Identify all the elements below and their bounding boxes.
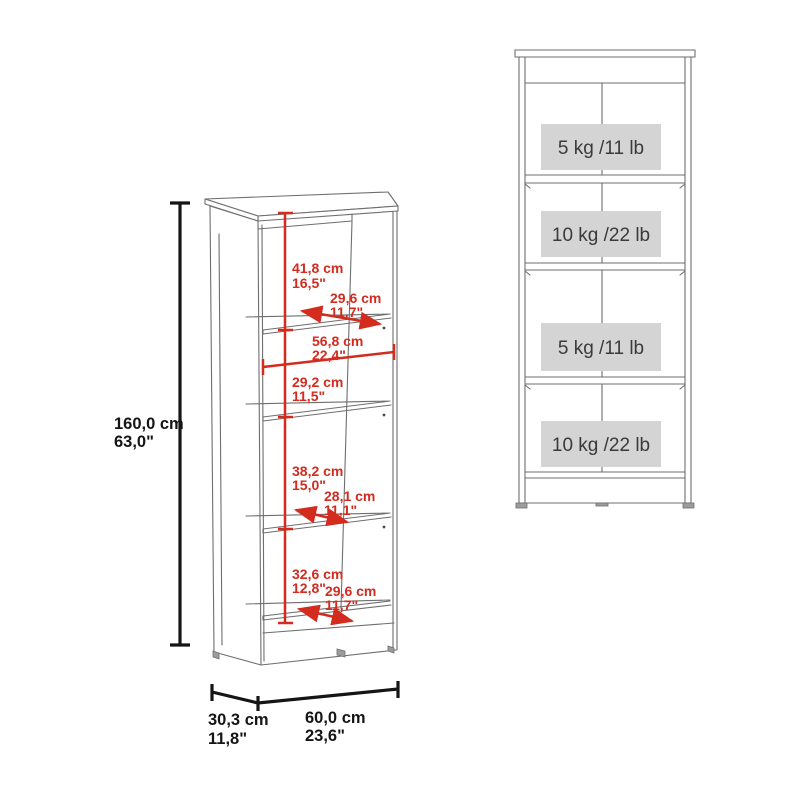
- capacity-label-1: 5 kg /11 lb: [558, 138, 644, 159]
- bookcase-dimension-diagram: 41,8 cm 16,5" 29,6 cm 11,7" 56,8 cm 22,4…: [0, 0, 800, 800]
- dim-third-compartment-in: 15,0": [292, 477, 326, 493]
- interior-dimension-labels: 41,8 cm 16,5" 29,6 cm 11,7" 56,8 cm 22,4…: [292, 260, 381, 613]
- shelf-1-pin: [383, 327, 386, 330]
- shelf-2-pin: [383, 414, 386, 417]
- depth-dim-cm: 30,3 cm: [208, 711, 269, 729]
- bottom-shelf: [246, 600, 391, 620]
- left-side-panel: [210, 206, 261, 665]
- depth-dim-in: 11,8": [208, 730, 247, 748]
- front-center-glide: [596, 503, 608, 506]
- dim-second-compartment-in: 11,5": [292, 388, 325, 404]
- capacity-label-4: 10 kg /22 lb: [552, 435, 650, 456]
- dim-bottom-compartment-in: 12,8": [292, 580, 326, 596]
- dim-interior-width-in: 22,4": [312, 347, 346, 363]
- bottom-front-edge: [261, 650, 396, 665]
- width-dim-cm: 60,0 cm: [305, 709, 366, 727]
- shelf-2: [246, 401, 391, 421]
- shelf-3-pin: [383, 526, 386, 529]
- depth-width-dim-line: [212, 681, 398, 711]
- left-panel-inner-edge: [262, 225, 264, 661]
- capacity-label-2: 10 kg /22 lb: [552, 225, 650, 246]
- dim-bottom-shelf-depth-in: 11,7": [325, 597, 358, 613]
- shelf-1: [246, 314, 391, 334]
- front-top-slab: [515, 50, 695, 57]
- front-left-foot: [516, 503, 527, 508]
- front-view: 5 kg /11 lb 10 kg /22 lb 5 kg /11 lb 10 …: [515, 50, 695, 508]
- height-dim-cm: 160,0 cm: [114, 415, 184, 433]
- diagram-canvas: 41,8 cm 16,5" 29,6 cm 11,7" 56,8 cm 22,4…: [0, 0, 800, 800]
- width-dim-in: 23,6": [305, 727, 345, 745]
- perspective-view: 41,8 cm 16,5" 29,6 cm 11,7" 56,8 cm 22,4…: [114, 192, 398, 748]
- front-right-foot: [683, 503, 694, 508]
- capacity-label-3: 5 kg /11 lb: [558, 338, 644, 359]
- height-dim-in: 63,0": [114, 433, 154, 451]
- center-foot: [337, 649, 345, 657]
- back-panel-seam: [341, 221, 352, 608]
- dim-top-compartment-cm: 41,8 cm: [292, 260, 343, 276]
- dim-middle-shelf-depth-in: 11,1": [324, 502, 357, 518]
- dim-top-shelf-depth-in: 11,7": [330, 304, 363, 320]
- plinth-seam: [263, 623, 394, 633]
- dim-top-compartment-in: 16,5": [292, 275, 326, 291]
- right-panel-edges: [393, 211, 397, 650]
